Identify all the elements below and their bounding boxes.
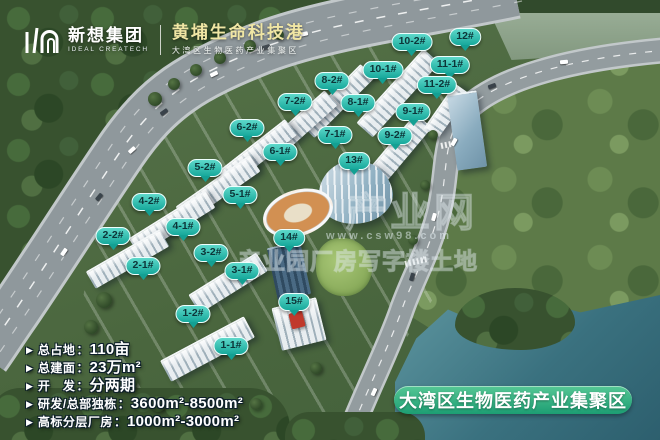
- building-label-7-2: 7-2#: [277, 93, 312, 111]
- group-logo-text: 新想集团 IDEAL CREATECH: [68, 27, 149, 53]
- stat-row: ▶ 研发/总部独栋 ： 3600m²-8500m²: [26, 396, 243, 413]
- building-label-9-2: 9-2#: [377, 127, 412, 145]
- footer-banner: 大湾区生物医药产业集聚区: [394, 386, 632, 414]
- building-label-7-1: 7-1#: [317, 126, 352, 144]
- stat-value: 1000m²-3000m²: [127, 414, 239, 429]
- bullet-icon: ▶: [26, 397, 33, 412]
- building-label-6-2: 6-2#: [229, 119, 264, 137]
- building-label-5-2: 5-2#: [187, 159, 222, 177]
- building-label-8-2: 8-2#: [314, 72, 349, 90]
- bullet-icon: ▶: [26, 361, 33, 376]
- header: 新想集团 IDEAL CREATECH 黄埔生命科技港 大湾区生物医药产业集聚区: [24, 24, 305, 56]
- bullet-icon: ▶: [26, 379, 33, 394]
- building-label-11-2: 11-2#: [417, 76, 457, 94]
- stat-row: ▶ 总建面 ： 23万m²: [26, 360, 243, 377]
- building-label-9-1: 9-1#: [395, 103, 430, 121]
- stat-value: 110亩: [89, 342, 129, 357]
- stat-value: 3600m²-8500m²: [131, 396, 243, 411]
- building-label-13: 13#: [338, 152, 370, 170]
- stat-colon: ：: [76, 379, 88, 394]
- stat-label: 开 发: [38, 379, 76, 394]
- building-label-1-2: 1-2#: [175, 305, 210, 323]
- stat-colon: ：: [114, 415, 126, 430]
- group-name: 新想集团: [68, 27, 149, 45]
- project-title: 黄埔生命科技港: [172, 24, 305, 42]
- building-label-10-1: 10-1#: [363, 61, 404, 79]
- stat-value: 23万m²: [89, 360, 141, 375]
- bullet-icon: ▶: [26, 343, 33, 358]
- building-label-2-1: 2-1#: [125, 257, 160, 275]
- building-label-3-2: 3-2#: [193, 244, 228, 262]
- stat-label: 总占地: [38, 343, 76, 358]
- group-logo-icon: [24, 25, 60, 55]
- group-name-en: IDEAL CREATECH: [68, 46, 149, 53]
- stat-colon: ：: [118, 397, 130, 412]
- building-label-15: 15#: [278, 293, 310, 311]
- header-divider: [160, 25, 161, 55]
- building-label-4-2: 4-2#: [131, 193, 166, 211]
- building-label-10-2: 10-2#: [392, 33, 433, 51]
- stat-row: ▶ 总占地 ： 110亩: [26, 342, 243, 359]
- stat-row: ▶ 开 发 ： 分两期: [26, 378, 243, 395]
- stat-label: 高标分层厂房: [38, 415, 113, 430]
- footer-banner-text: 大湾区生物医药产业集聚区: [399, 387, 627, 413]
- building-label-2-2: 2-2#: [95, 227, 130, 245]
- project-subtitle: 大湾区生物医药产业集聚区: [172, 45, 305, 56]
- stat-label: 研发/总部独栋: [38, 397, 117, 412]
- building-label-3-1: 3-1#: [224, 262, 259, 280]
- building-label-12: 12#: [449, 28, 481, 46]
- stat-value: 分两期: [89, 378, 135, 393]
- stat-colon: ：: [76, 343, 88, 358]
- building-label-11-1: 11-1#: [430, 56, 470, 74]
- building-label-14: 14#: [273, 229, 305, 247]
- project-title-block: 黄埔生命科技港 大湾区生物医药产业集聚区: [172, 24, 305, 56]
- stat-label: 总建面: [38, 361, 76, 376]
- building-label-4-1: 4-1#: [165, 218, 200, 236]
- building-label-5-1: 5-1#: [222, 186, 257, 204]
- stat-row: ▶ 高标分层厂房 ： 1000m²-3000m²: [26, 414, 243, 431]
- building-label-6-1: 6-1#: [262, 143, 297, 161]
- building-label-8-1: 8-1#: [340, 94, 375, 112]
- aerial-site-map: 产业网 www.csw98.com 产业园厂房写字楼土地 1-1#1-2#2-1…: [0, 0, 660, 440]
- bullet-icon: ▶: [26, 415, 33, 430]
- stat-colon: ：: [76, 361, 88, 376]
- stats-block: ▶ 总占地 ： 110亩 ▶ 总建面 ： 23万m² ▶ 开 发 ： 分两期 ▶…: [26, 342, 243, 432]
